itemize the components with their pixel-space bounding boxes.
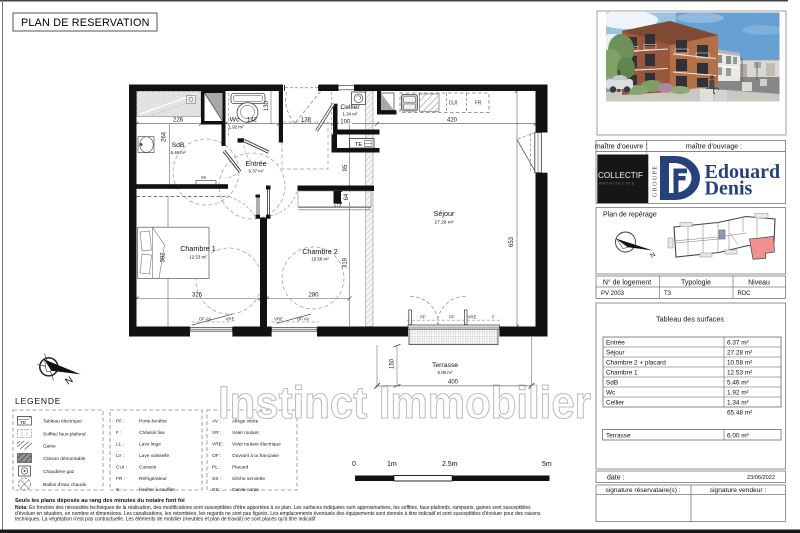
svg-text:1.34 m²: 1.34 m² [343,112,358,117]
svg-text:OF AV: OF AV [297,317,310,322]
svg-text:signature vendeur :: signature vendeur : [710,487,767,494]
svg-text:Chambre 1: Chambre 1 [180,244,216,253]
svg-text:VR :: VR : [212,430,221,436]
svg-text:Entrée: Entrée [245,159,266,168]
svg-text:VRE: VRE [225,317,234,322]
svg-text:Porte-fenêtre: Porte-fenêtre [139,419,167,425]
svg-text:techniques. La végétation n'es: techniques. La végétation n'est pas cont… [15,517,316,523]
svg-text:FR: FR [475,101,482,107]
svg-text:VRE: VRE [467,315,476,320]
svg-text:Terrasse: Terrasse [432,362,458,369]
svg-text:Chambre 2: Chambre 2 [302,247,338,256]
svg-text:PF: PF [449,315,455,320]
svg-text:GROUPE: GROUPE [653,165,659,197]
svg-text:Seuls les plans déposés au ran: Seuls les plans déposés au rang des minu… [15,498,185,504]
svg-text:173: 173 [334,203,342,208]
svg-text:LV :: LV : [116,453,124,459]
svg-text:Sèche serviette: Sèche serviette [232,476,265,482]
svg-text:SS :: SS : [212,476,221,482]
svg-text:6.00 m²: 6.00 m² [438,370,453,375]
svg-text:T3: T3 [664,291,672,297]
svg-text:1.92 m²: 1.92 m² [727,390,749,397]
svg-text:95: 95 [343,164,349,171]
svg-text:Garde-corps: Garde-corps [232,487,259,493]
svg-text:0: 0 [352,461,356,468]
svg-text:10.58 m²: 10.58 m² [727,360,752,367]
svg-text:LL :: LL : [116,442,124,448]
svg-text:Ouvrant à la française: Ouvrant à la française [232,453,279,459]
svg-text:S :: S : [116,487,122,493]
svg-text:27.28 m²: 27.28 m² [435,220,454,226]
svg-text:Lave linge: Lave linge [139,442,161,448]
svg-text:6.37 m²: 6.37 m² [249,169,264,174]
svg-text:TE: TE [355,142,362,148]
svg-text:Denis: Denis [705,178,753,200]
svg-text:Chambre 1: Chambre 1 [606,370,638,377]
svg-text:SdB: SdB [172,142,185,149]
svg-text:Volet roulant: Volet roulant [232,430,259,436]
svg-text:280: 280 [308,293,319,299]
svg-text:6.37 m²: 6.37 m² [727,340,749,347]
svg-text:Typologie: Typologie [681,279,711,286]
svg-text:PF: PF [420,315,426,320]
svg-text:6.00 m²: 6.00 m² [727,433,749,440]
svg-text:420: 420 [447,118,458,124]
svg-text:5.46 m²: 5.46 m² [727,380,749,387]
svg-text:signature réservataire(s) :: signature réservataire(s) : [605,487,680,494]
svg-text:LEGENDE: LEGENDE [15,396,61,406]
svg-text:Tableau des surfaces: Tableau des surfaces [656,315,724,324]
svg-text:Niveau: Niveau [748,279,770,286]
svg-text:138: 138 [301,118,312,124]
svg-text:CUI: CUI [449,101,458,107]
svg-text:130: 130 [264,100,270,111]
svg-text:64: 64 [344,193,350,200]
svg-text:COLLECTIF: COLLECTIF [598,171,643,180]
svg-text:ARCHITECTES: ARCHITECTES [599,182,635,186]
svg-text:382: 382 [161,252,167,263]
svg-text:Instinct Immobilier: Instinct Immobilier [218,377,591,428]
svg-text:Lave vaisselle: Lave vaisselle [139,453,169,459]
svg-text:653: 653 [509,236,515,247]
svg-text:Châssis fixe: Châssis fixe [139,430,165,436]
svg-text:Placard: Placard [232,465,249,471]
svg-text:12.53 m²: 12.53 m² [189,255,207,260]
svg-text:OF :: OF : [212,453,221,459]
svg-text:2.5m: 2.5m [442,461,458,468]
svg-text:VRE :: VRE : [212,442,225,448]
svg-text:1.92 m²: 1.92 m² [229,125,244,130]
svg-text:Terrasse: Terrasse [606,433,631,440]
svg-text:Cellier: Cellier [340,104,360,111]
svg-text:CUI :: CUI : [116,465,127,471]
svg-text:100: 100 [340,119,351,125]
svg-text:5m: 5m [542,461,552,468]
svg-text:12.53 m²: 12.53 m² [727,370,752,377]
svg-text:VRE: VRE [274,317,283,322]
svg-text:Cloison démontable: Cloison démontable [43,456,86,462]
svg-text:PL :: PL : [212,465,220,471]
svg-text:Entrée: Entrée [606,340,625,347]
svg-text:5.46 m²: 5.46 m² [171,150,186,155]
svg-text:maître d'ouvrage :: maître d'ouvrage : [686,144,742,151]
svg-text:326: 326 [192,293,203,299]
svg-text:OF AV: OF AV [199,317,212,322]
svg-text:226: 226 [173,118,184,124]
svg-text:Ballon d'eau chaude: Ballon d'eau chaude [43,482,87,488]
svg-text:319: 319 [343,257,349,268]
svg-text:PF :: PF : [116,419,125,425]
svg-text:Réfrigérateur: Réfrigérateur [139,476,167,482]
svg-text:Wc: Wc [606,390,616,397]
svg-text:Séjour: Séjour [606,350,625,357]
svg-text:F :: F : [116,430,122,436]
svg-text:FR :: FR : [116,476,125,482]
svg-text:Wc: Wc [230,117,240,124]
svg-text:Volet roulant électrique: Volet roulant électrique [232,442,281,448]
svg-text:Séjour: Séjour [434,209,455,218]
svg-text:Chambre 2 + placard: Chambre 2 + placard [606,360,666,367]
svg-text:PLAN DE RESERVATION: PLAN DE RESERVATION [21,17,150,29]
svg-text:Gaine: Gaine [43,444,56,450]
svg-text:89: 89 [201,175,206,180]
svg-text:150: 150 [390,358,396,369]
svg-text:Plan de repérage: Plan de repérage [603,212,657,219]
svg-text:27.28 m²: 27.28 m² [727,350,752,357]
svg-text:264: 264 [162,131,168,142]
svg-text:65.48 m²: 65.48 m² [727,410,752,417]
svg-text:Chaudière gaz: Chaudière gaz [43,469,75,475]
svg-text:F: F [492,315,495,320]
svg-text:TE: TE [20,420,26,426]
svg-text:142: 142 [247,118,258,124]
svg-text:SdB: SdB [606,380,618,387]
svg-text:1m: 1m [387,461,397,468]
svg-text:Soffite/ faux-plafond: Soffite/ faux-plafond [43,432,86,438]
svg-text:GC :: GC : [212,487,222,493]
svg-text:1.34 m²: 1.34 m² [727,400,749,407]
svg-text:N: N [63,374,75,387]
svg-text:date :: date : [607,475,625,482]
svg-text:N° de logement: N° de logement [603,278,651,286]
svg-text:10.58 m²: 10.58 m² [311,257,329,262]
svg-text:RDC: RDC [738,291,752,297]
svg-text:Tableau électrique: Tableau électrique [43,419,82,425]
svg-text:23/06/2022: 23/06/2022 [747,475,775,481]
svg-text:fenêtre à soufflet: fenêtre à soufflet [139,487,175,493]
svg-text:Cellier: Cellier [606,400,625,407]
svg-text:Cuisson: Cuisson [139,465,157,471]
svg-text:PV 2003: PV 2003 [601,291,625,297]
svg-text:maître d'oeuvre :: maître d'oeuvre : [595,144,647,151]
